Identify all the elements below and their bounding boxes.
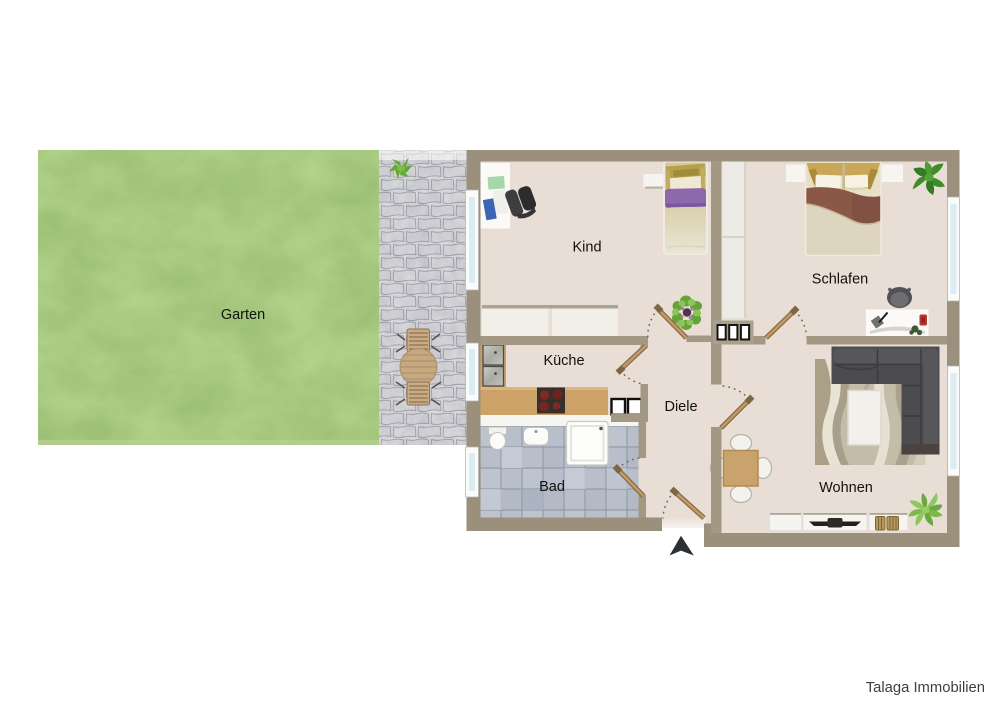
svg-text:Küche: Küche (543, 353, 584, 369)
svg-text:Kind: Kind (572, 240, 601, 256)
svg-text:Bad: Bad (539, 479, 565, 495)
svg-text:Schlafen: Schlafen (812, 272, 868, 288)
svg-text:Diele: Diele (664, 399, 697, 415)
svg-text:Garten: Garten (221, 307, 265, 323)
svg-text:Wohnen: Wohnen (819, 480, 873, 496)
svg-text:Talaga Immobilien: Talaga Immobilien (866, 680, 985, 696)
